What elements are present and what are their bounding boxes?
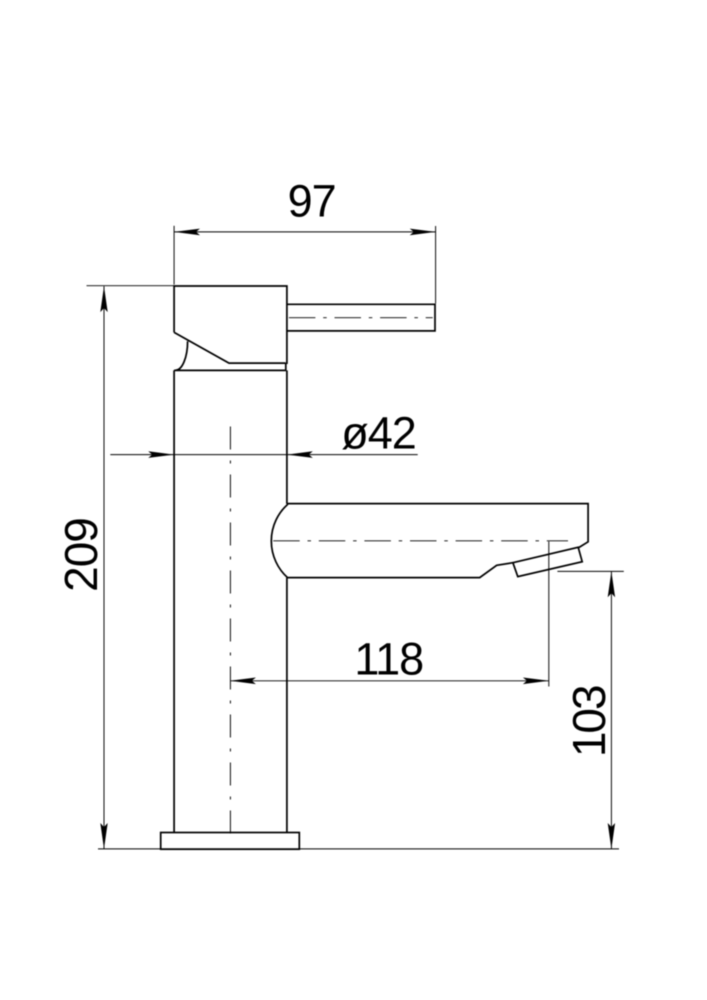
svg-text:118: 118 xyxy=(354,634,423,685)
svg-text:103: 103 xyxy=(563,686,615,757)
svg-text:ø42: ø42 xyxy=(341,408,416,459)
svg-text:209: 209 xyxy=(55,518,107,592)
svg-text:97: 97 xyxy=(288,176,336,227)
